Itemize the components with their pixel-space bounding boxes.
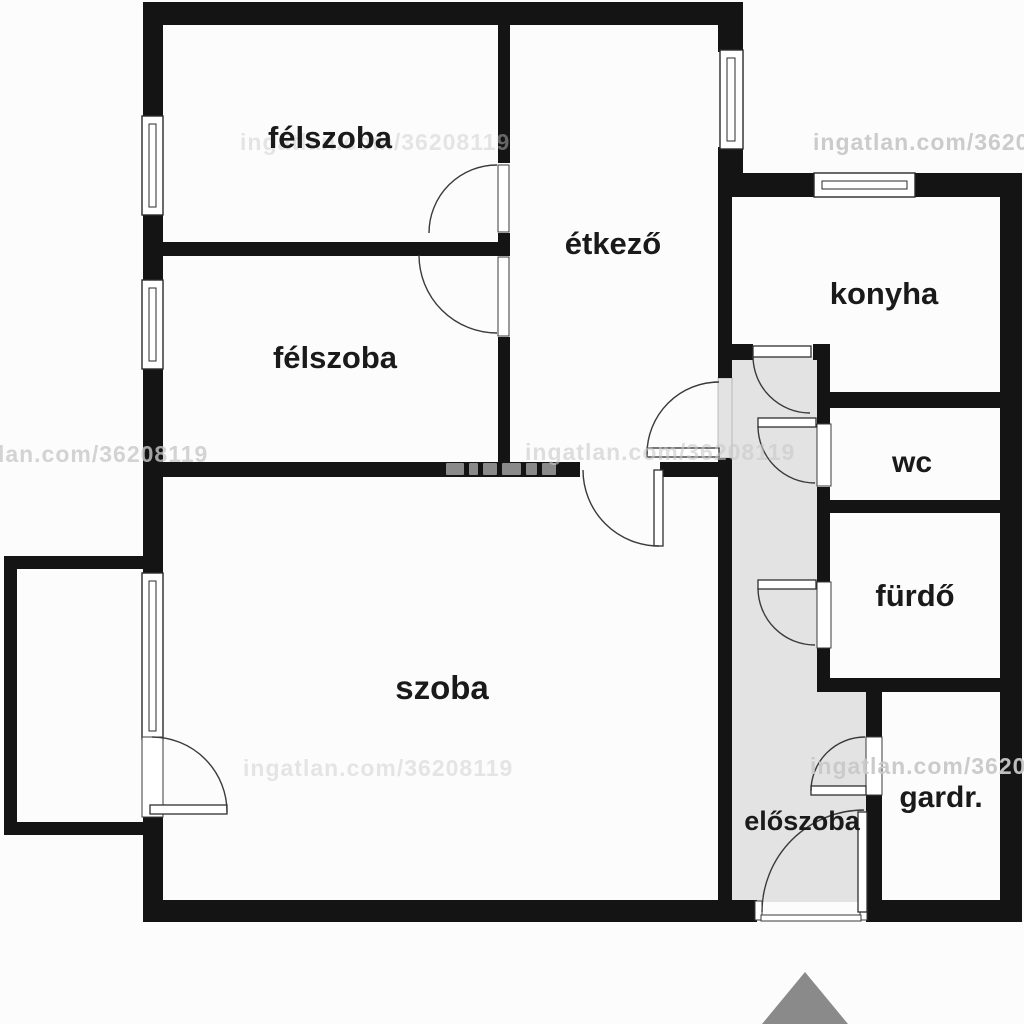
window-felszoba2	[142, 280, 163, 369]
floorplan-svg: ingatlan.com/36208119 ingatlan.com/36208…	[0, 0, 1024, 1024]
room-label-felszoba1: félszoba	[268, 120, 393, 155]
room-label-konyha: konyha	[830, 276, 939, 311]
floorplan-image: ingatlan.com/36208119 ingatlan.com/36208…	[0, 0, 1024, 1024]
watermark-text: ingatlan.com/36208119	[810, 753, 1024, 779]
room-label-szoba: szoba	[395, 669, 489, 706]
room-label-etkezo: étkező	[565, 226, 661, 261]
watermark-text: ingatlan.com/36208119	[0, 441, 208, 467]
watermark-text: ingatlan.com/36208119	[813, 129, 1024, 155]
room-label-felszoba2: félszoba	[273, 340, 398, 375]
room-label-wc: wc	[891, 446, 932, 479]
room-label-eloszoba: előszoba	[744, 806, 861, 836]
window-szoba	[142, 573, 163, 739]
watermark-text: ingatlan.com/36208119	[243, 755, 513, 781]
room-label-gardrob: gardr.	[899, 781, 982, 814]
room-label-furdo: fürdő	[875, 578, 954, 613]
window-felszoba1	[142, 116, 163, 215]
window-etkezo	[720, 50, 743, 149]
window-konyha	[814, 173, 915, 197]
watermark-text: ingatlan.com/36208119	[525, 439, 795, 465]
